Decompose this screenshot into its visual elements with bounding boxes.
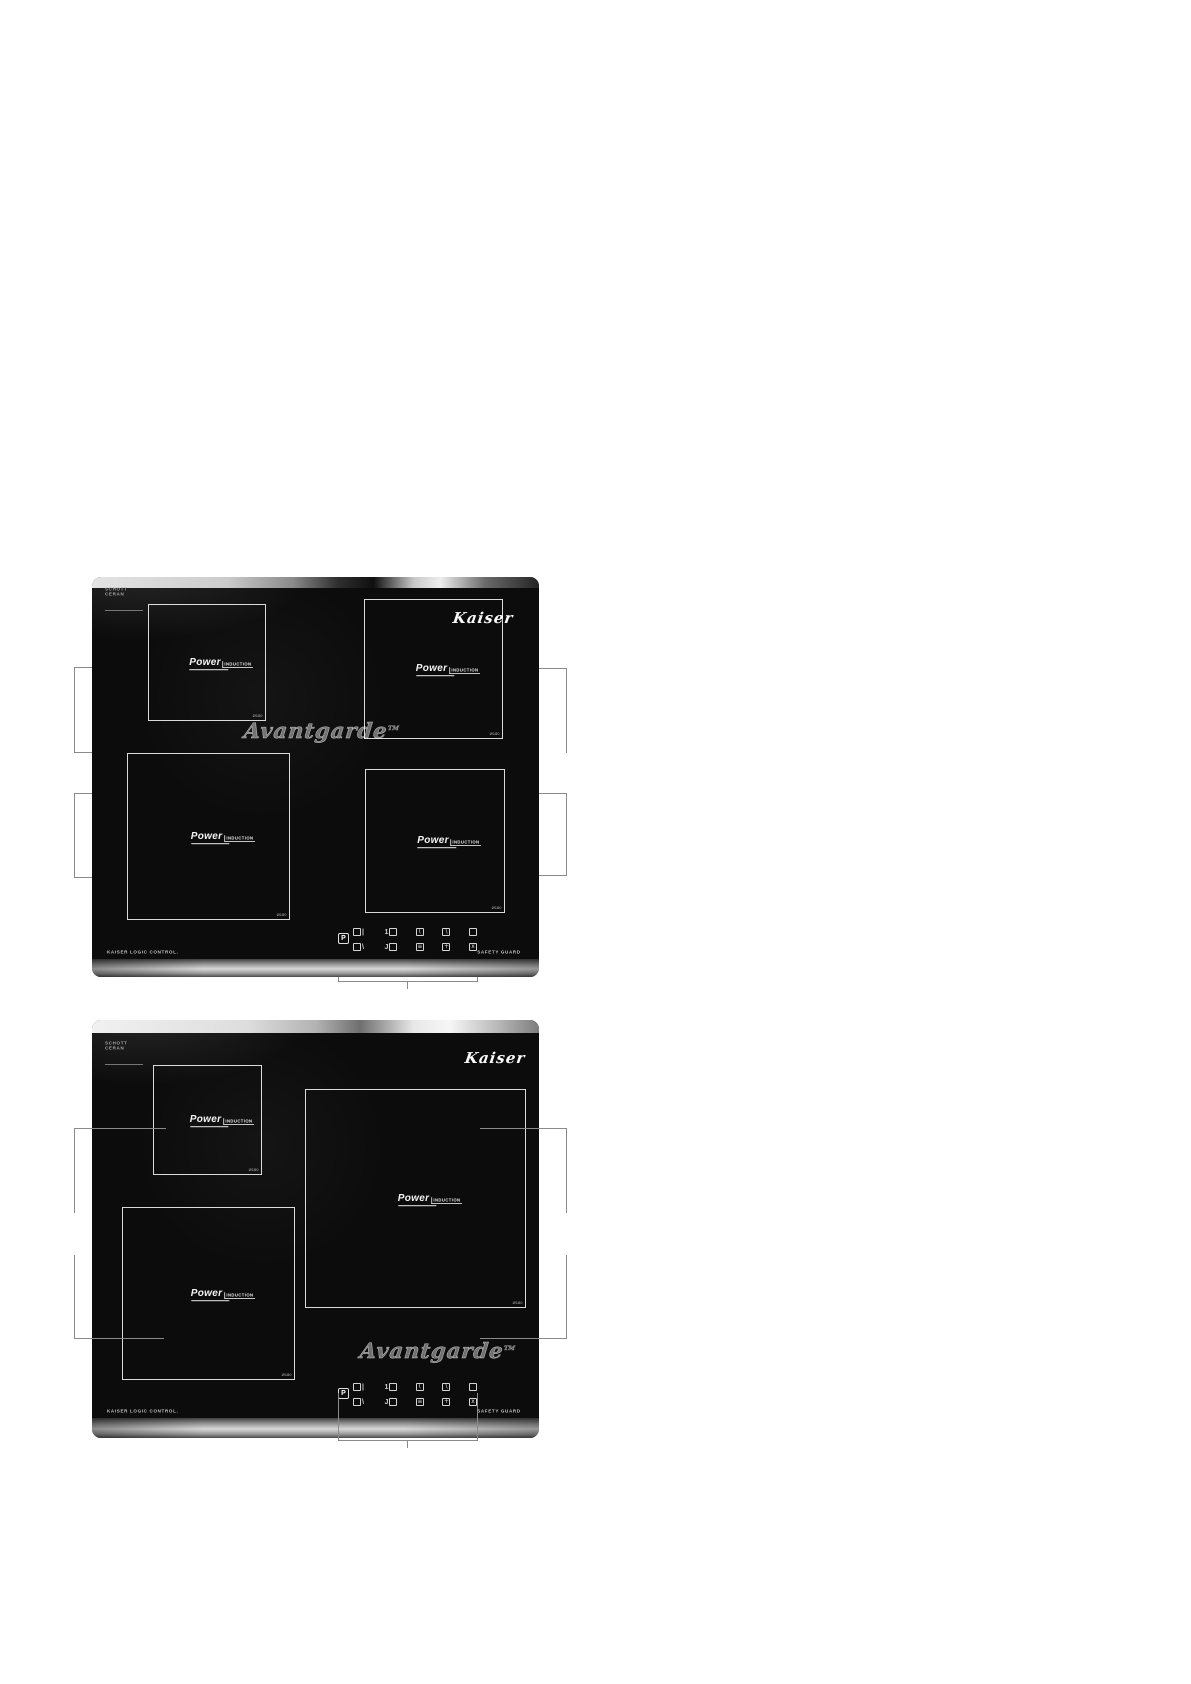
power-induction-logo: Power INDUCTION bbox=[189, 652, 228, 670]
callout-line bbox=[566, 793, 567, 876]
hob-photo-four-zone: SCHOTT CERAN Kaiser Power INDUCTION Ø180… bbox=[92, 577, 539, 977]
touch-icon: \ bbox=[442, 928, 450, 936]
touch-icon: ≡ bbox=[416, 1398, 424, 1406]
callout-line bbox=[74, 667, 92, 668]
glass-mark-line2: CERAN bbox=[105, 592, 146, 597]
callout-line bbox=[566, 1128, 567, 1213]
power-induction-logo: Power INDUCTION bbox=[191, 1283, 230, 1301]
callout-line bbox=[539, 793, 567, 794]
callout-line bbox=[338, 1393, 339, 1441]
zone-size-label: Ø180 bbox=[512, 1301, 522, 1305]
cooking-zone-frame: Power INDUCTION Ø180 bbox=[153, 1065, 262, 1175]
callout-line bbox=[566, 1255, 567, 1339]
touch-control-row: |1(\ bbox=[353, 1382, 477, 1392]
callout-line bbox=[480, 1338, 567, 1339]
touch-icon: J bbox=[383, 1398, 397, 1406]
touch-icon: | bbox=[353, 1383, 365, 1391]
cooking-zone-frame: Power INDUCTION Ø180 bbox=[148, 604, 266, 721]
callout-line bbox=[74, 877, 92, 878]
stainless-trim bbox=[92, 1418, 539, 1438]
touch-icon: ( bbox=[416, 1383, 424, 1391]
callout-line bbox=[74, 793, 75, 878]
callout-line bbox=[74, 1128, 75, 1213]
stainless-trim bbox=[92, 959, 539, 977]
touch-icon: | bbox=[353, 928, 365, 936]
callout-line bbox=[74, 793, 92, 794]
avantgarde-series-logo: AvantgardeTM bbox=[359, 1338, 516, 1363]
callout-line bbox=[407, 1440, 408, 1448]
cooking-zone-frame: Power INDUCTION Ø180 bbox=[127, 753, 290, 920]
touch-control-row: |1(\ bbox=[353, 927, 477, 937]
avantgarde-series-logo: AvantgardeTM bbox=[243, 718, 400, 743]
glass-mark-line2: CERAN bbox=[105, 1046, 146, 1051]
callout-line bbox=[407, 981, 408, 989]
schott-ceran-mark: SCHOTT CERAN bbox=[105, 1041, 195, 1063]
zone-size-label: Ø180 bbox=[281, 1373, 291, 1377]
touch-icon: ( bbox=[416, 928, 424, 936]
touch-icon bbox=[469, 1383, 477, 1391]
hob-photo-three-zone: SCHOTT CERAN Kaiser Power INDUCTION Ø180… bbox=[92, 1020, 539, 1438]
touch-icon: J bbox=[383, 943, 397, 951]
hob-front-edge bbox=[92, 1020, 539, 1033]
glass-mark-rule bbox=[105, 610, 143, 611]
touch-icon: x bbox=[469, 943, 477, 951]
callout-line bbox=[338, 981, 478, 982]
power-induction-logo: Power INDUCTION bbox=[417, 830, 456, 848]
touch-control-row: \J≡+x bbox=[353, 942, 477, 952]
power-induction-logo: Power INDUCTION bbox=[190, 1109, 229, 1127]
power-key-icon: P bbox=[338, 933, 349, 944]
callout-line bbox=[477, 1393, 478, 1441]
touch-icon: 1 bbox=[384, 928, 398, 936]
callout-line bbox=[74, 1128, 166, 1129]
kaiser-logic-control-label: KAISER LOGIC CONTROL. bbox=[107, 1409, 178, 1414]
zone-size-label: Ø180 bbox=[248, 1168, 258, 1172]
cooking-zone-frame: Power INDUCTION Ø180 bbox=[365, 769, 505, 913]
callout-line bbox=[74, 1255, 75, 1339]
power-induction-logo: Power INDUCTION bbox=[416, 658, 455, 676]
zone-size-label: Ø180 bbox=[489, 732, 499, 736]
power-key-icon: P bbox=[338, 1388, 349, 1399]
power-induction-logo: Power INDUCTION bbox=[398, 1188, 437, 1206]
touch-icon: + bbox=[442, 1398, 450, 1406]
safety-guard-label: SAFETY GUARD bbox=[477, 950, 521, 955]
glass-mark-rule bbox=[105, 1064, 143, 1065]
zone-size-label: Ø180 bbox=[276, 913, 286, 917]
callout-line bbox=[566, 668, 567, 753]
touch-icon: x bbox=[469, 1398, 477, 1406]
kaiser-logic-control-label: KAISER LOGIC CONTROL. bbox=[107, 950, 178, 955]
callout-line bbox=[539, 668, 567, 669]
touch-icon bbox=[469, 928, 477, 936]
touch-control-row: \J≡+x bbox=[353, 1397, 477, 1407]
callout-line bbox=[480, 1128, 567, 1129]
cooking-zone-frame: Power INDUCTION Ø180 bbox=[122, 1207, 295, 1380]
cooking-zone-frame: Power INDUCTION Ø180 bbox=[305, 1089, 526, 1308]
kaiser-brand-logo: Kaiser bbox=[463, 1049, 526, 1067]
zone-size-label: Ø180 bbox=[491, 906, 501, 910]
power-induction-logo: Power INDUCTION bbox=[191, 826, 230, 844]
touch-icon: 1 bbox=[384, 1383, 398, 1391]
manual-page: { "document": { "type": "appliance manua… bbox=[0, 0, 1191, 1684]
touch-icon: \ bbox=[442, 1383, 450, 1391]
safety-guard-label: SAFETY GUARD bbox=[477, 1409, 521, 1414]
callout-line bbox=[338, 1440, 478, 1441]
touch-icon: + bbox=[442, 943, 450, 951]
touch-icon: \ bbox=[353, 1398, 365, 1406]
touch-icon: ≡ bbox=[416, 943, 424, 951]
callout-line bbox=[74, 1338, 164, 1339]
callout-line bbox=[74, 752, 92, 753]
touch-icon: \ bbox=[353, 943, 365, 951]
callout-line bbox=[539, 875, 567, 876]
callout-line bbox=[74, 667, 75, 753]
